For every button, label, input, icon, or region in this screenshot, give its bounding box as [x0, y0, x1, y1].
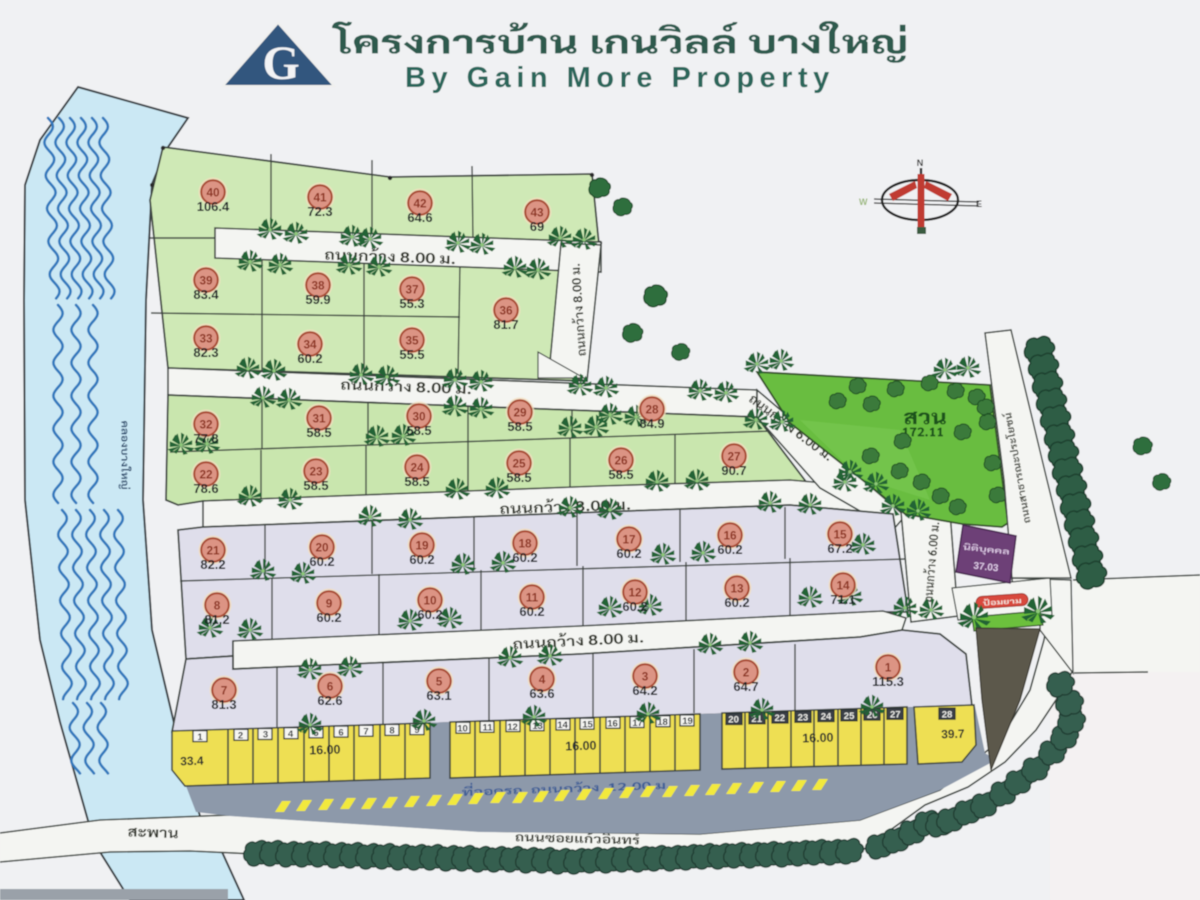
svg-text:19: 19: [415, 538, 429, 552]
svg-text:60.2: 60.2: [724, 595, 749, 610]
svg-text:32: 32: [199, 417, 213, 431]
svg-text:58.5: 58.5: [406, 423, 431, 438]
svg-text:83.4: 83.4: [193, 287, 219, 302]
svg-text:64.7: 64.7: [733, 679, 758, 694]
svg-text:22: 22: [775, 713, 786, 724]
svg-text:60.2: 60.2: [309, 554, 334, 569]
svg-text:84.9: 84.9: [639, 416, 664, 431]
svg-text:21: 21: [206, 543, 220, 557]
svg-text:7: 7: [363, 726, 368, 737]
svg-text:18: 18: [518, 536, 532, 550]
svg-text:37: 37: [405, 282, 419, 296]
svg-text:10: 10: [457, 723, 468, 734]
svg-text:64.6: 64.6: [407, 210, 432, 225]
svg-text:8: 8: [214, 598, 221, 612]
svg-text:20: 20: [315, 540, 329, 554]
svg-text:20: 20: [728, 715, 739, 726]
svg-text:12: 12: [628, 585, 642, 599]
svg-text:58.5: 58.5: [306, 425, 331, 440]
svg-text:5: 5: [436, 674, 443, 688]
svg-text:33.4: 33.4: [180, 754, 204, 769]
svg-text:38: 38: [311, 278, 325, 292]
svg-text:26: 26: [614, 453, 628, 467]
svg-text:3: 3: [642, 669, 649, 683]
svg-text:6: 6: [327, 679, 334, 693]
svg-text:39.7: 39.7: [941, 727, 965, 742]
svg-text:67.2: 67.2: [827, 541, 852, 556]
svg-text:81.3: 81.3: [211, 697, 236, 712]
svg-text:12: 12: [507, 722, 518, 733]
svg-text:69: 69: [530, 219, 544, 234]
svg-text:16: 16: [607, 719, 618, 730]
svg-text:55.5: 55.5: [399, 347, 424, 362]
svg-text:82.3: 82.3: [193, 345, 218, 360]
svg-text:34: 34: [303, 337, 317, 351]
svg-text:60.2: 60.2: [616, 546, 641, 561]
svg-text:9: 9: [326, 596, 333, 610]
svg-text:58.5: 58.5: [608, 467, 633, 482]
svg-text:11: 11: [526, 590, 539, 604]
svg-text:55.3: 55.3: [399, 296, 424, 311]
svg-text:10: 10: [423, 593, 437, 607]
svg-text:11: 11: [482, 723, 493, 734]
svg-text:58.5: 58.5: [507, 419, 532, 434]
svg-text:72.3: 72.3: [307, 204, 332, 219]
svg-text:28: 28: [942, 709, 953, 720]
svg-text:35: 35: [405, 333, 419, 347]
svg-text:2: 2: [743, 665, 750, 679]
svg-text:N: N: [917, 158, 924, 168]
svg-text:4: 4: [288, 729, 294, 740]
svg-text:58.5: 58.5: [506, 470, 531, 485]
svg-text:1: 1: [197, 732, 203, 743]
svg-text:W: W: [859, 197, 868, 207]
svg-text:82.2: 82.2: [200, 557, 225, 572]
svg-text:60.2: 60.2: [622, 599, 647, 614]
svg-text:60.2: 60.2: [717, 542, 742, 557]
svg-text:16.00: 16.00: [309, 742, 341, 757]
svg-text:60.2: 60.2: [409, 552, 434, 567]
svg-text:60.2: 60.2: [512, 550, 537, 565]
svg-text:60.2: 60.2: [519, 604, 544, 619]
svg-text:17: 17: [622, 532, 636, 546]
svg-text:4: 4: [539, 672, 546, 686]
svg-text:22: 22: [199, 467, 213, 481]
svg-text:24: 24: [821, 712, 832, 723]
svg-text:36: 36: [499, 303, 513, 317]
svg-text:40: 40: [206, 185, 220, 199]
svg-text:28: 28: [645, 402, 659, 416]
svg-text:58.5: 58.5: [303, 478, 328, 493]
svg-text:60.2: 60.2: [316, 610, 341, 625]
svg-text:7: 7: [221, 683, 228, 697]
svg-text:E: E: [976, 199, 982, 209]
svg-text:25: 25: [844, 711, 855, 722]
svg-text:106.4: 106.4: [197, 199, 230, 214]
svg-text:77.8: 77.8: [193, 431, 218, 446]
svg-text:64.2: 64.2: [632, 683, 657, 698]
svg-text:24: 24: [410, 460, 424, 474]
svg-text:90.7: 90.7: [721, 463, 746, 478]
svg-text:43: 43: [530, 205, 544, 219]
svg-text:15: 15: [582, 719, 593, 730]
svg-text:31: 31: [312, 411, 326, 425]
svg-text:39: 39: [199, 273, 213, 287]
svg-text:By Gain More Property: By Gain More Property: [405, 62, 835, 94]
svg-text:33: 33: [199, 331, 213, 345]
svg-text:3: 3: [263, 730, 268, 741]
svg-text:2: 2: [238, 731, 243, 742]
svg-text:115.3: 115.3: [872, 674, 904, 689]
svg-text:60.2: 60.2: [297, 351, 322, 366]
svg-text:15: 15: [833, 527, 847, 541]
svg-text:25: 25: [512, 456, 526, 470]
svg-text:78.6: 78.6: [193, 481, 218, 496]
svg-text:16.00: 16.00: [802, 730, 834, 745]
svg-text:6: 6: [338, 727, 343, 738]
svg-text:29: 29: [513, 405, 527, 419]
svg-text:71.1: 71.1: [830, 592, 855, 607]
svg-text:19: 19: [682, 716, 693, 727]
svg-text:59.9: 59.9: [305, 292, 330, 307]
svg-text:16: 16: [723, 528, 737, 542]
svg-text:81.2: 81.2: [204, 612, 229, 627]
svg-text:G: G: [262, 37, 299, 90]
svg-text:27: 27: [890, 709, 901, 720]
svg-text:16.00: 16.00: [565, 738, 597, 753]
svg-text:27: 27: [727, 449, 741, 463]
svg-text:42: 42: [413, 196, 427, 210]
svg-text:13: 13: [730, 581, 744, 595]
svg-text:23: 23: [309, 464, 323, 478]
svg-text:63.6: 63.6: [529, 686, 554, 701]
svg-text:1: 1: [885, 660, 892, 674]
svg-text:62.6: 62.6: [317, 693, 342, 708]
svg-text:30: 30: [412, 409, 426, 423]
svg-text:23: 23: [798, 712, 809, 723]
svg-text:14: 14: [557, 720, 568, 731]
svg-text:81.7: 81.7: [493, 317, 518, 332]
svg-text:8: 8: [389, 726, 394, 737]
svg-text:58.5: 58.5: [404, 474, 429, 489]
svg-text:63.1: 63.1: [426, 688, 451, 703]
svg-text:41: 41: [313, 190, 327, 204]
svg-text:14: 14: [836, 578, 850, 592]
svg-text:60.2: 60.2: [417, 607, 442, 622]
